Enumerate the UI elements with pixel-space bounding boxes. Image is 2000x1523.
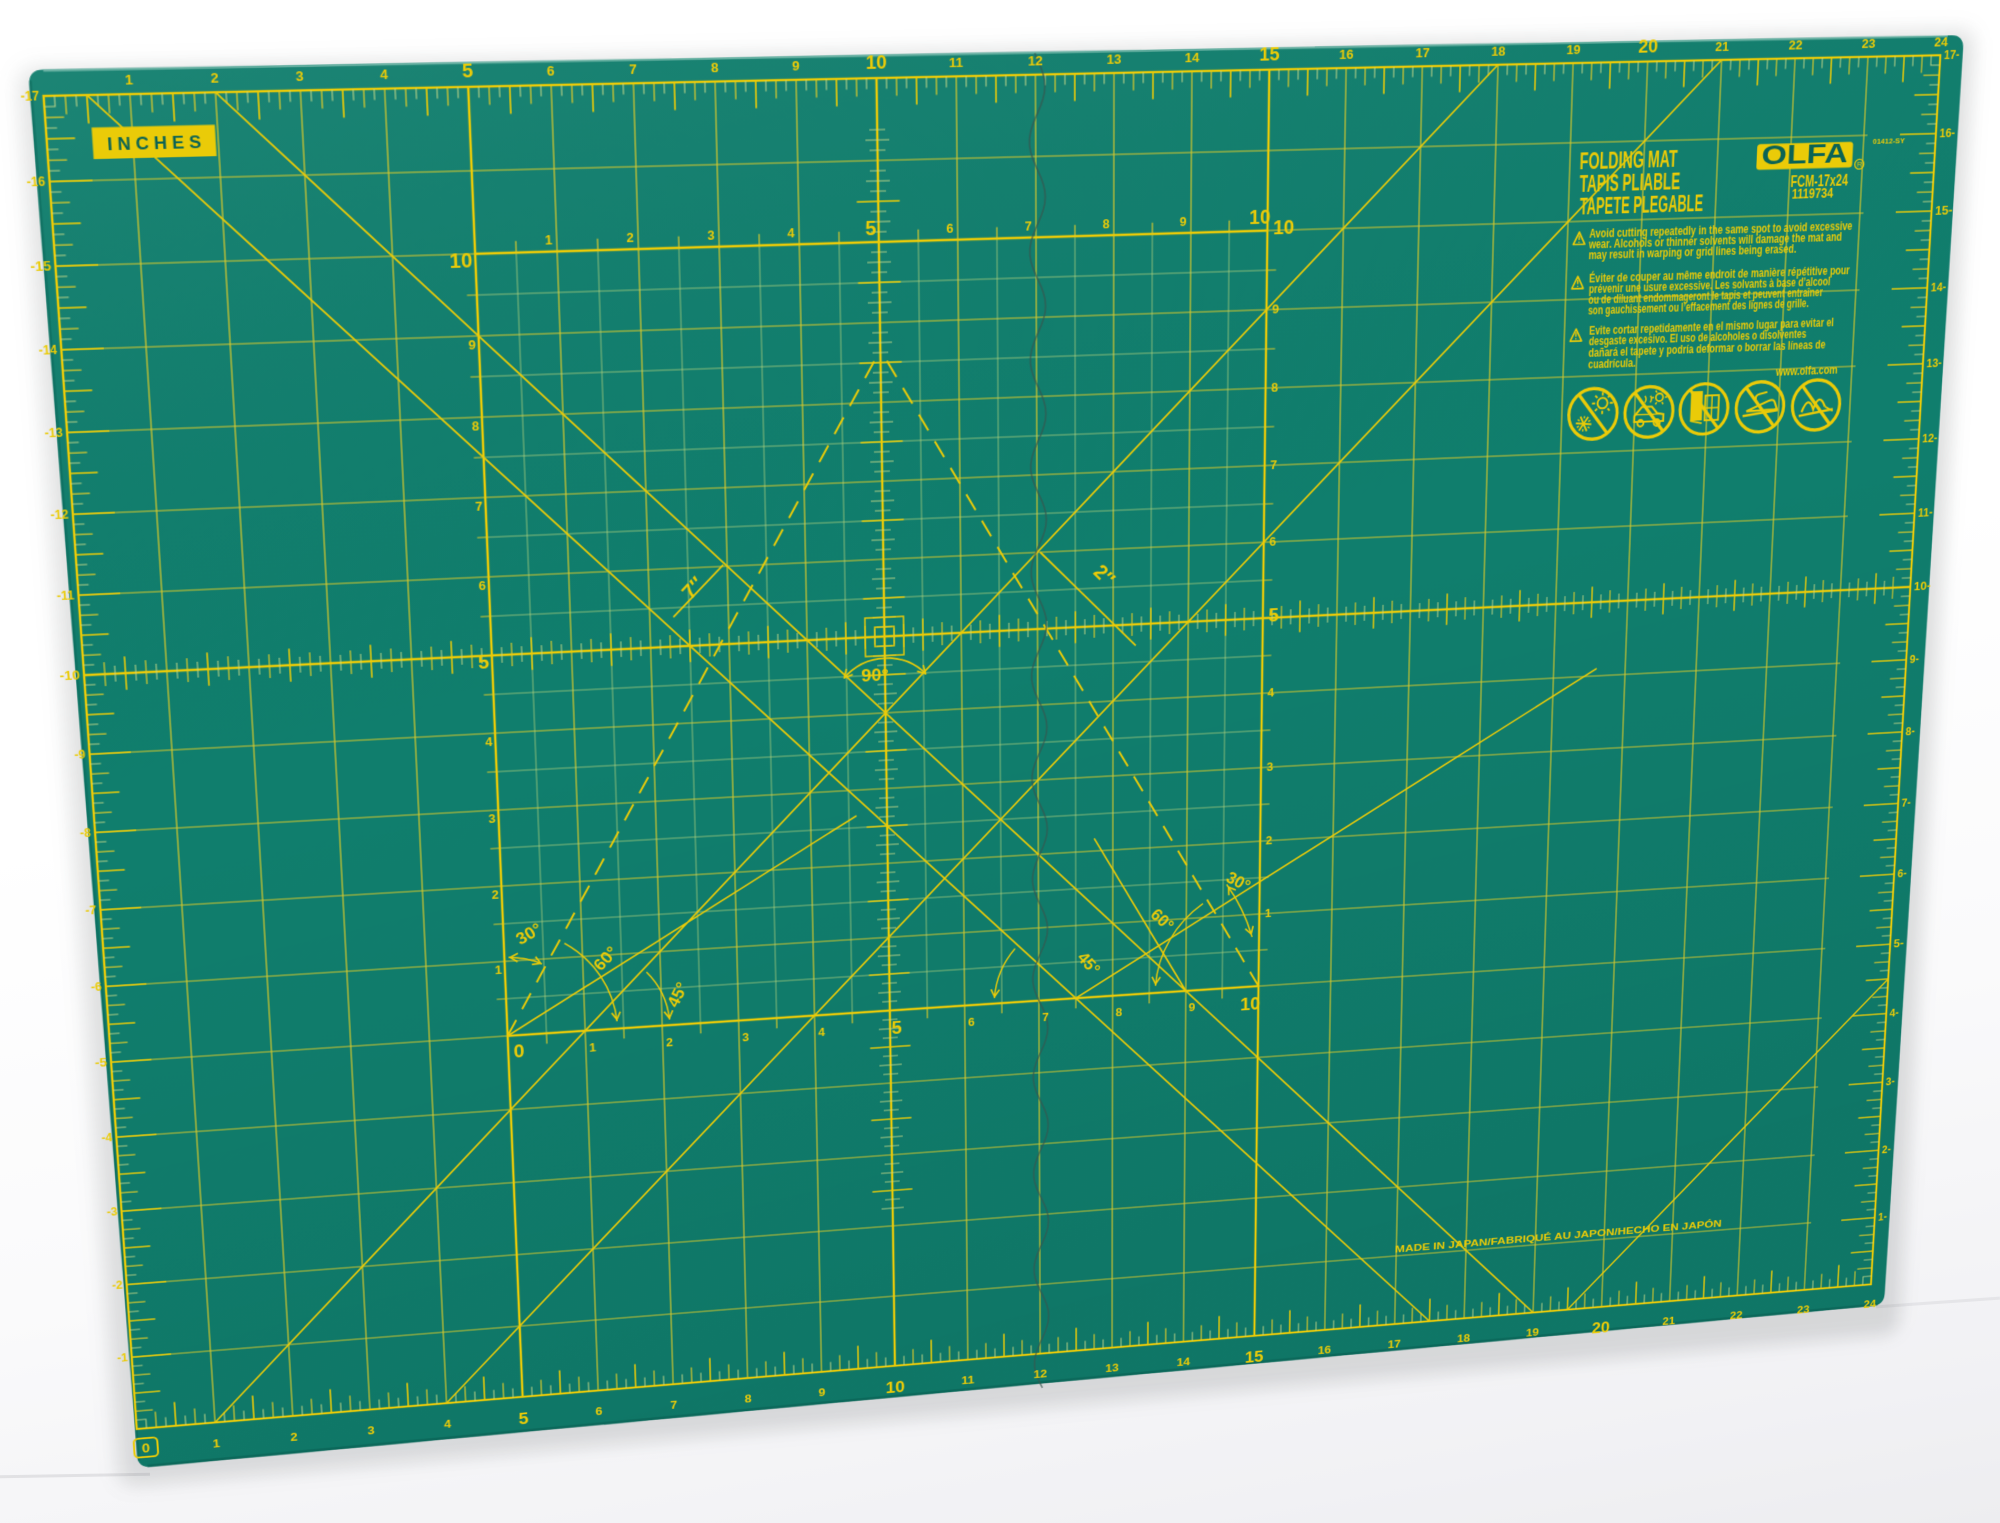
svg-text:16: 16 (1339, 48, 1354, 63)
svg-text:6: 6 (595, 1405, 603, 1418)
svg-text:4: 4 (818, 1026, 825, 1040)
svg-text:23: 23 (1861, 37, 1875, 52)
svg-text:www.olfa.com: www.olfa.com (1775, 363, 1838, 378)
svg-text:21: 21 (1662, 1315, 1675, 1328)
svg-text:14: 14 (1177, 1356, 1191, 1370)
svg-text:-13: -13 (44, 426, 63, 441)
svg-text:10: 10 (885, 1377, 905, 1397)
svg-text:9: 9 (1272, 303, 1279, 318)
svg-text:3: 3 (742, 1031, 749, 1045)
svg-text:7: 7 (1025, 219, 1032, 234)
svg-text:1: 1 (589, 1041, 597, 1055)
svg-text:1: 1 (545, 233, 553, 248)
svg-text:24: 24 (1863, 1298, 1877, 1311)
svg-text:1: 1 (495, 963, 503, 977)
svg-text:11: 11 (949, 56, 963, 71)
svg-text:-10: -10 (59, 669, 80, 685)
svg-text:5: 5 (518, 1409, 529, 1428)
svg-text:1: 1 (1265, 907, 1272, 921)
svg-text:15: 15 (1259, 43, 1280, 65)
svg-text:-1: -1 (117, 1352, 128, 1365)
svg-text:10: 10 (449, 248, 473, 272)
svg-text:9: 9 (818, 1386, 825, 1399)
svg-text:6: 6 (546, 64, 554, 80)
svg-text:7-: 7- (1901, 797, 1911, 810)
svg-text:20: 20 (1591, 1318, 1610, 1337)
svg-text:9-: 9- (1909, 653, 1919, 666)
svg-text:10: 10 (865, 51, 886, 73)
svg-text:3: 3 (1266, 761, 1273, 775)
svg-text:4: 4 (485, 735, 493, 750)
svg-text:cuadrícula.: cuadrícula. (1588, 356, 1636, 372)
svg-text:8: 8 (744, 1393, 751, 1406)
svg-text:TAPETE PLEGABLE: TAPETE PLEGABLE (1579, 190, 1703, 221)
svg-text:4: 4 (787, 226, 795, 241)
svg-text:3-: 3- (1885, 1076, 1895, 1088)
svg-text:20: 20 (1638, 36, 1658, 58)
svg-text:16-: 16- (1939, 127, 1955, 141)
svg-text:23: 23 (1797, 1303, 1810, 1316)
svg-text:17: 17 (1388, 1338, 1401, 1352)
svg-text:22: 22 (1730, 1309, 1743, 1322)
svg-text:I N C H E S: I N C H E S (107, 131, 202, 154)
svg-text:OLFA: OLFA (1761, 139, 1849, 171)
svg-text:2: 2 (626, 231, 634, 246)
svg-text:6: 6 (946, 222, 953, 237)
svg-text:14-: 14- (1930, 281, 1946, 295)
svg-text:-9: -9 (74, 748, 86, 762)
svg-text:7: 7 (1042, 1011, 1049, 1025)
svg-text:7: 7 (475, 500, 483, 515)
svg-text:2: 2 (210, 71, 219, 87)
svg-text:13-: 13- (1926, 357, 1942, 371)
svg-text:6: 6 (968, 1016, 975, 1030)
svg-text:8: 8 (1102, 217, 1109, 232)
svg-text:6: 6 (478, 579, 486, 594)
svg-text:-5: -5 (95, 1056, 108, 1071)
svg-text:-17: -17 (20, 89, 40, 104)
svg-text:8: 8 (1271, 381, 1278, 396)
svg-text:10: 10 (1249, 205, 1270, 228)
svg-text:-3: -3 (106, 1206, 118, 1219)
svg-text:-12: -12 (50, 508, 69, 523)
svg-text:7: 7 (1270, 459, 1277, 473)
svg-text:15-: 15- (1935, 204, 1953, 219)
svg-text:2: 2 (491, 888, 499, 902)
svg-text:9: 9 (468, 338, 476, 353)
svg-text:4: 4 (444, 1418, 452, 1432)
svg-text:11: 11 (961, 1374, 974, 1388)
svg-text:3: 3 (295, 69, 304, 85)
svg-text:10-: 10- (1913, 580, 1931, 594)
svg-text:1: 1 (124, 73, 133, 89)
svg-text:9: 9 (792, 59, 800, 74)
svg-text:12: 12 (1033, 1368, 1047, 1382)
svg-text:11-: 11- (1918, 506, 1933, 519)
svg-text:17: 17 (1415, 46, 1430, 61)
svg-text:2: 2 (290, 1431, 298, 1445)
svg-text:8: 8 (711, 61, 719, 77)
svg-text:90°: 90° (861, 665, 889, 687)
svg-text:-8: -8 (80, 826, 92, 840)
svg-text:18: 18 (1491, 44, 1506, 59)
svg-text:19: 19 (1526, 1326, 1539, 1339)
svg-text:1-: 1- (1878, 1211, 1888, 1223)
svg-text:15: 15 (1245, 1347, 1264, 1367)
svg-text:4: 4 (380, 67, 389, 83)
svg-text:-6: -6 (90, 981, 102, 995)
svg-text:-2: -2 (112, 1279, 123, 1292)
svg-text:5: 5 (477, 650, 489, 673)
svg-text:16: 16 (1318, 1344, 1331, 1358)
svg-text:22: 22 (1788, 38, 1802, 53)
svg-text:10: 10 (1273, 216, 1294, 239)
svg-text:6: 6 (1269, 536, 1276, 550)
svg-text:8: 8 (1116, 1006, 1123, 1020)
svg-text:0: 0 (141, 1441, 150, 1456)
svg-text:-4: -4 (101, 1131, 113, 1145)
svg-text:1: 1 (212, 1437, 220, 1451)
svg-text:5: 5 (462, 60, 474, 83)
svg-text:-7: -7 (85, 904, 97, 918)
svg-text:R: R (1857, 161, 1862, 169)
svg-text:9: 9 (1180, 215, 1187, 230)
svg-text:12: 12 (1028, 54, 1043, 69)
svg-text:12-: 12- (1922, 432, 1938, 445)
svg-text:2-: 2- (1882, 1144, 1892, 1156)
svg-text:3: 3 (488, 812, 496, 826)
svg-text:4-: 4- (1889, 1007, 1899, 1020)
svg-text:8: 8 (472, 419, 480, 434)
svg-text:0: 0 (513, 1040, 525, 1062)
svg-text:6-: 6- (1897, 868, 1907, 881)
svg-text:10: 10 (1240, 993, 1260, 1015)
svg-text:18: 18 (1457, 1332, 1470, 1345)
svg-text:5: 5 (865, 216, 876, 240)
svg-text:17-: 17- (1944, 48, 1960, 62)
svg-text:-15: -15 (30, 259, 52, 275)
svg-text:3: 3 (367, 1424, 375, 1438)
svg-text:7: 7 (629, 62, 637, 78)
svg-text:5: 5 (891, 1017, 902, 1039)
svg-text:14: 14 (1185, 51, 1200, 66)
svg-text:9: 9 (1189, 1001, 1196, 1015)
svg-text:5: 5 (1268, 604, 1279, 626)
svg-text:5-: 5- (1893, 938, 1904, 951)
svg-text:-11: -11 (56, 589, 74, 604)
svg-text:21: 21 (1715, 40, 1729, 55)
svg-text:4: 4 (1267, 687, 1274, 701)
svg-text:19: 19 (1566, 43, 1581, 58)
svg-text:-14: -14 (38, 343, 58, 358)
svg-text:3: 3 (707, 228, 715, 243)
svg-text:01412-SY: 01412-SY (1873, 136, 1906, 146)
svg-text:13: 13 (1107, 52, 1122, 67)
svg-text:7: 7 (670, 1399, 677, 1412)
svg-text:2: 2 (666, 1036, 673, 1050)
svg-text:13: 13 (1105, 1362, 1118, 1376)
svg-text:2: 2 (1266, 835, 1273, 849)
svg-text:8-: 8- (1905, 725, 1915, 738)
svg-text:-16: -16 (26, 175, 46, 190)
svg-text:1119734: 1119734 (1791, 186, 1834, 202)
